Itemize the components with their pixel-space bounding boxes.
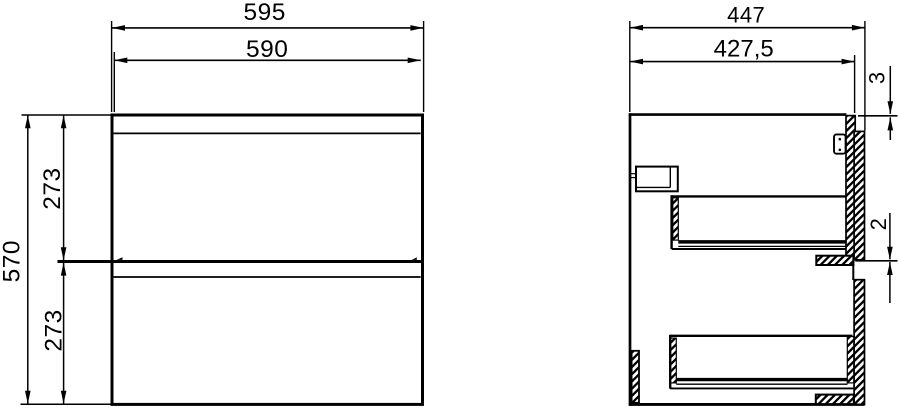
svg-text:273: 273 [39, 167, 66, 209]
svg-text:2: 2 [866, 218, 891, 230]
svg-text:570: 570 [0, 240, 26, 282]
svg-text:595: 595 [244, 0, 286, 26]
svg-text:273: 273 [41, 309, 68, 351]
svg-text:590: 590 [246, 36, 288, 63]
svg-text:3: 3 [865, 72, 890, 84]
svg-text:447: 447 [727, 2, 765, 27]
svg-text:427,5: 427,5 [714, 35, 774, 62]
